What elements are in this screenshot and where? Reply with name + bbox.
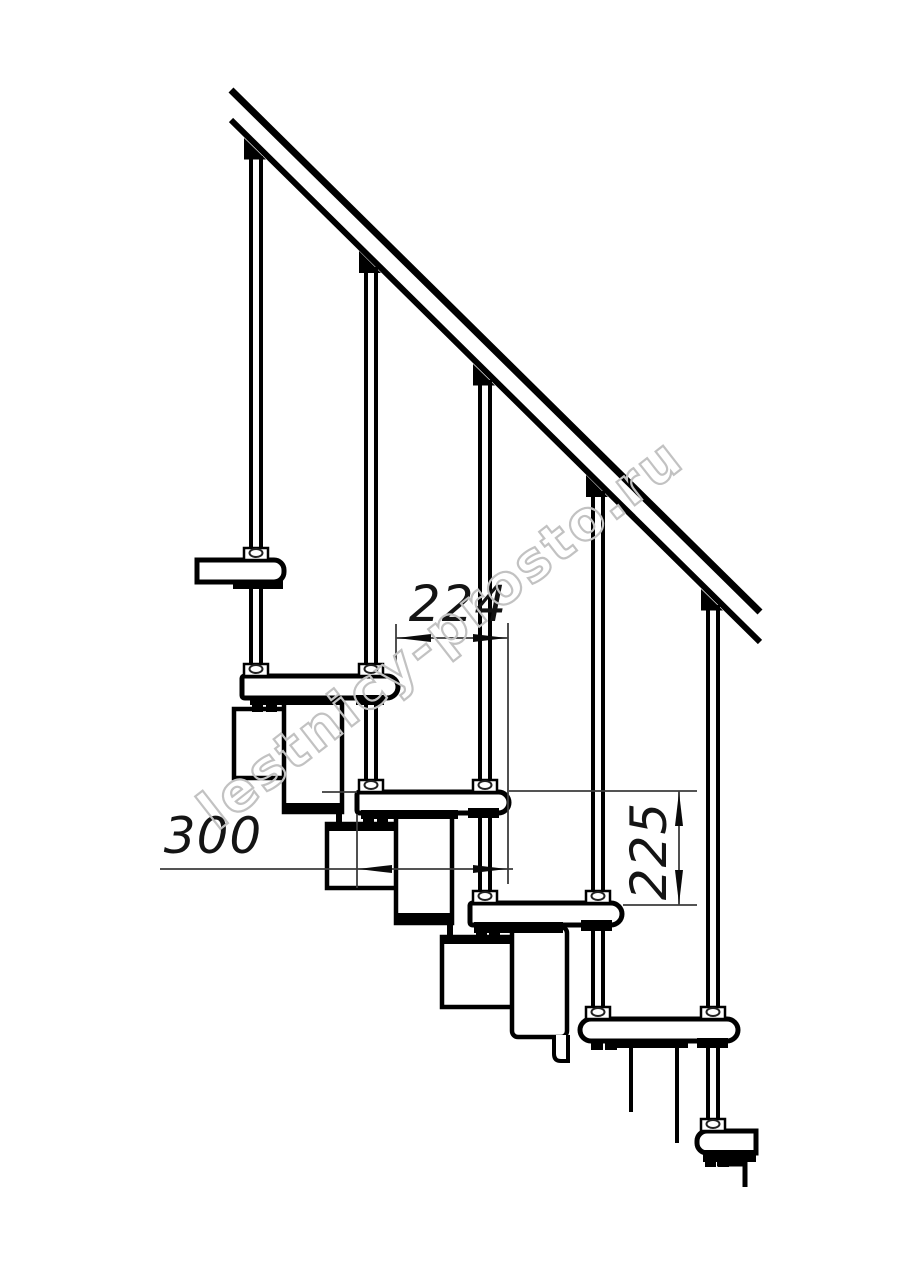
collar: [244, 548, 268, 560]
under-tab: [718, 1162, 729, 1167]
handrail-upper-line: [231, 90, 760, 612]
module-box-3: [512, 927, 567, 1037]
under-tab: [377, 819, 388, 826]
under-tab: [252, 705, 263, 712]
baluster-4: [593, 491, 603, 1019]
collar: [586, 891, 610, 903]
collar: [244, 664, 268, 676]
handrail-baluster-wedges: [244, 138, 723, 611]
nose-flange-3: [581, 920, 612, 931]
collar: [359, 780, 383, 792]
staircase-drawing: 224 300 225 lestnicy-prosto.ru: [0, 0, 914, 1280]
under-strip-fragment: [233, 580, 283, 589]
module-insert-2: [327, 824, 404, 888]
floor-connector-line: [717, 1164, 745, 1187]
collar: [473, 891, 497, 903]
nose-flange-2: [468, 808, 499, 818]
under-strip-3: [474, 922, 563, 933]
baluster-5: [708, 605, 718, 1131]
under-tab: [489, 933, 500, 940]
under-strip-4: [617, 1039, 688, 1048]
tread-4: [580, 1019, 738, 1041]
under-tab: [605, 1039, 617, 1050]
baluster-1: [251, 156, 261, 676]
staircase-drawing-page: 224 300 225 lestnicy-prosto.ru: [0, 0, 914, 1280]
tread-fragment-top: [197, 560, 284, 582]
module-box-3-lip: [554, 1035, 568, 1061]
collar: [701, 1007, 725, 1019]
under-strip-5: [703, 1150, 756, 1162]
baluster-3: [480, 380, 490, 903]
collar: [586, 1007, 610, 1019]
dimension-label-225: 225: [620, 802, 678, 900]
module-box-2-bottom-bar: [396, 913, 452, 923]
under-tab: [591, 1039, 603, 1050]
under-tab: [363, 819, 374, 826]
module-insert-3: [442, 937, 518, 1007]
under-tab: [476, 933, 487, 940]
under-tab: [705, 1162, 716, 1167]
tread-5: [697, 1131, 756, 1153]
under-tab: [266, 705, 277, 712]
nose-flange-4: [697, 1038, 728, 1048]
module-box-1-bottom-bar: [284, 803, 342, 813]
under-strip-2: [361, 810, 458, 819]
collar: [701, 1119, 725, 1131]
collar: [473, 780, 497, 792]
